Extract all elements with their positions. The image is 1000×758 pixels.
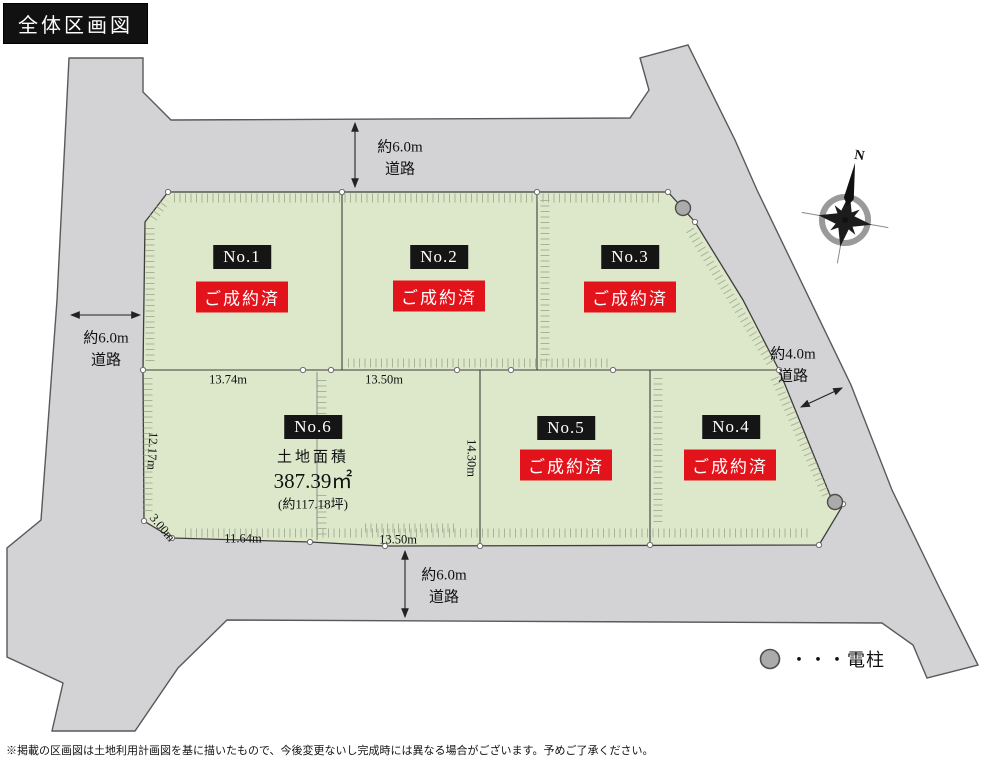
lot6-area-tsubo: (約117.18坪): [278, 494, 348, 513]
utility-pole-icon: [676, 201, 691, 216]
lot6-area-title: 土地面積: [277, 446, 349, 467]
road-top-width: 約6.0m: [377, 137, 422, 159]
dim-lot6-top: 13.74m: [209, 373, 247, 388]
road-bottom-word: 道路: [421, 587, 466, 609]
road-label-top: 約6.0m 道路: [377, 137, 422, 181]
road-label-bottom: 約6.0m 道路: [421, 565, 466, 609]
compass-rose: N: [794, 140, 901, 271]
road-right-width: 約4.0m: [770, 344, 815, 366]
dim-lot5-bottom: 13.50m: [379, 533, 417, 548]
lot1-number: No.1: [213, 245, 271, 269]
legend-pole-label: ・・・電柱: [790, 646, 885, 672]
plot-map-page: N 全体区画図 約6.0m 道路 約6.0m 道路 約6.0m 道路 約4.0m…: [0, 0, 1000, 758]
lot4-number: No.4: [702, 415, 760, 439]
lot5-status-badge: ご成約済: [520, 450, 612, 481]
road-label-right: 約4.0m 道路: [770, 344, 815, 388]
lot3-number: No.3: [601, 245, 659, 269]
road-left-word: 道路: [83, 350, 128, 372]
compass-north-label: N: [853, 148, 866, 165]
lot6-number: No.6: [284, 415, 342, 439]
lot6-area-value: 387.39㎡: [274, 465, 353, 495]
road-bottom-width: 約6.0m: [421, 565, 466, 587]
page-title: 全体区画図: [3, 3, 148, 44]
dim-lot6-left: 12.17m: [144, 432, 161, 471]
lot3-status-badge: ご成約済: [584, 282, 676, 313]
legend-pole-icon: [761, 650, 780, 669]
road-top-word: 道路: [377, 159, 422, 181]
lot4-status-badge: ご成約済: [684, 450, 776, 481]
lot1-status-badge: ご成約済: [196, 282, 288, 313]
disclaimer-note: ※掲載の区画図は土地利用計画図を基に描いたもので、今後変更ないし完成時には異なる…: [6, 742, 653, 758]
utility-pole-icon: [828, 495, 843, 510]
dim-lot6-bottom: 11.64m: [224, 532, 261, 547]
lot2-number: No.2: [410, 245, 468, 269]
dim-lot6-top-right: 13.50m: [365, 373, 403, 388]
lot5-number: No.5: [537, 416, 595, 440]
lot2-status-badge: ご成約済: [393, 281, 485, 312]
road-left-width: 約6.0m: [83, 328, 128, 350]
dim-lot5-left: 14.30m: [464, 439, 479, 477]
road-label-left: 約6.0m 道路: [83, 328, 128, 372]
site-plan-svg: N: [0, 0, 1000, 758]
road-right-word: 道路: [770, 366, 815, 388]
